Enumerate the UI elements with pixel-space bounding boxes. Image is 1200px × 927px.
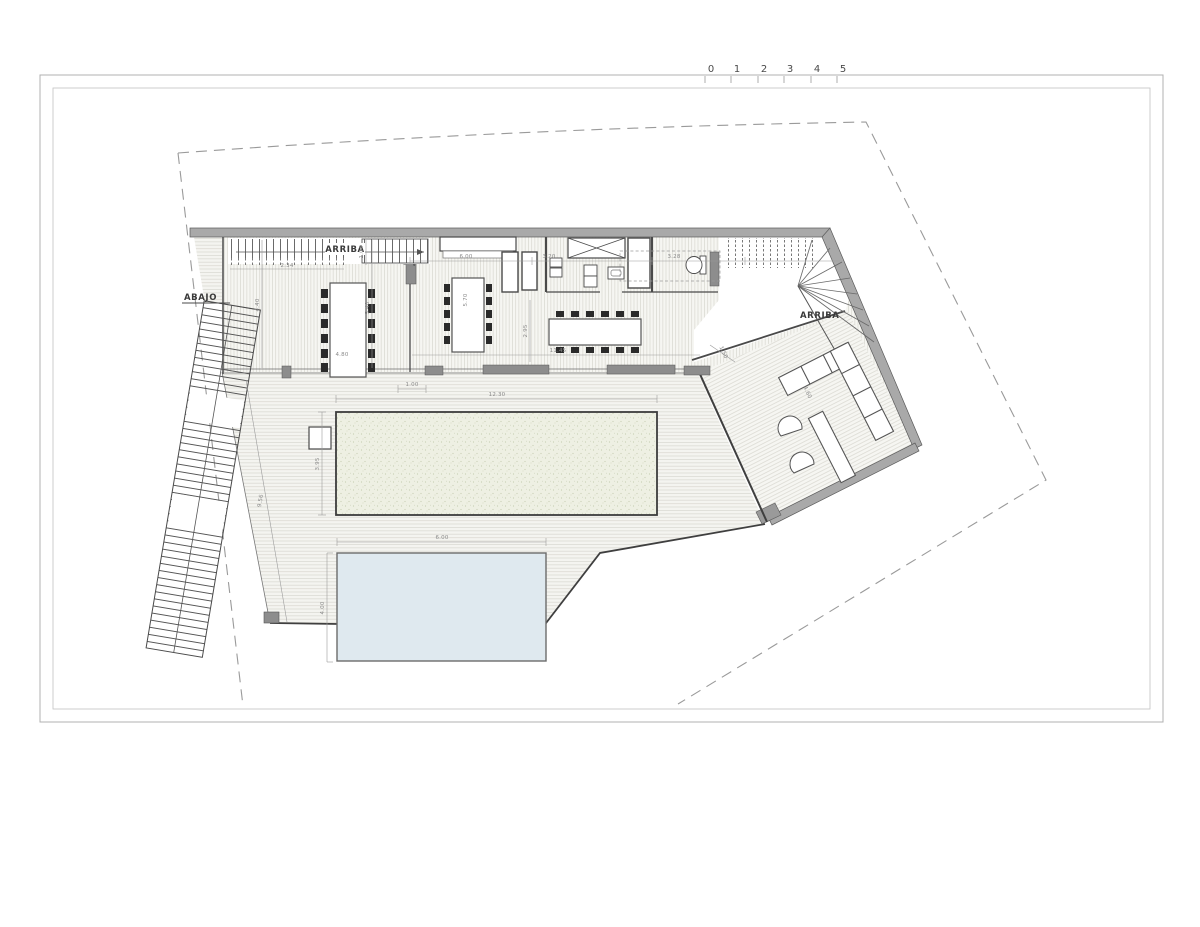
dim-south-front: 11.45 <box>550 348 567 354</box>
dim-lower-pool-width: 4.00 <box>320 601 326 614</box>
skylight-box <box>568 238 625 258</box>
scale-0: 0 <box>708 64 714 75</box>
scale-5: 5 <box>840 64 846 75</box>
stair-label-upper-right: ARRIBA <box>800 311 840 321</box>
drawing-sheet: 0 1 2 3 4 5 <box>0 0 1200 927</box>
stair-label-exterior: ABAJO <box>184 293 217 303</box>
dim-pool-width: 3.95 <box>315 457 321 470</box>
tall-cabinet-2 <box>522 252 537 290</box>
scale-4: 4 <box>814 64 820 75</box>
deck-planter <box>309 427 331 449</box>
floor-plan-svg: 0 1 2 3 4 5 <box>0 0 1200 927</box>
dim-island-length: 5.70 <box>463 293 469 306</box>
dim-dining-depth-left: 4.40 <box>255 298 261 311</box>
lower-water-feature <box>337 553 546 661</box>
washbasin-2 <box>550 268 562 277</box>
dim-bath2-width: 3.28 <box>667 254 680 260</box>
dim-kitchen-depth: 2.95 <box>523 324 529 337</box>
deck-corner-pier <box>264 612 279 623</box>
staircase-upper-left: ARRIBA <box>228 238 430 265</box>
dim-stair-width: 1.04 <box>359 245 365 258</box>
dim-stair-run: 2.34 <box>280 263 293 269</box>
scale-bar: 0 1 2 3 4 5 <box>705 64 846 83</box>
dim-kitchen-width: 6.00 <box>459 254 472 260</box>
tall-cabinet-3 <box>628 238 650 288</box>
tall-cabinet-1 <box>502 252 518 292</box>
scale-2: 2 <box>761 64 767 75</box>
appliance-2 <box>584 276 597 287</box>
main-pool <box>336 412 657 515</box>
dim-pool-length: 12.30 <box>489 392 506 398</box>
appliance-1 <box>584 265 597 276</box>
sink <box>611 270 621 276</box>
scale-3: 3 <box>787 64 793 75</box>
scale-1: 1 <box>734 64 740 75</box>
kitchen-cabinet-top <box>440 237 516 251</box>
toilet <box>686 256 706 274</box>
dim-lower-pool-length: 6.00 <box>435 535 448 541</box>
dim-pool-offset: 1.00 <box>405 382 418 388</box>
dim-bath-width: 3.20 <box>542 254 555 260</box>
dim-dining-table: 4.80 <box>335 352 348 358</box>
dim-dining-depth-right: 5.40 <box>365 301 371 314</box>
